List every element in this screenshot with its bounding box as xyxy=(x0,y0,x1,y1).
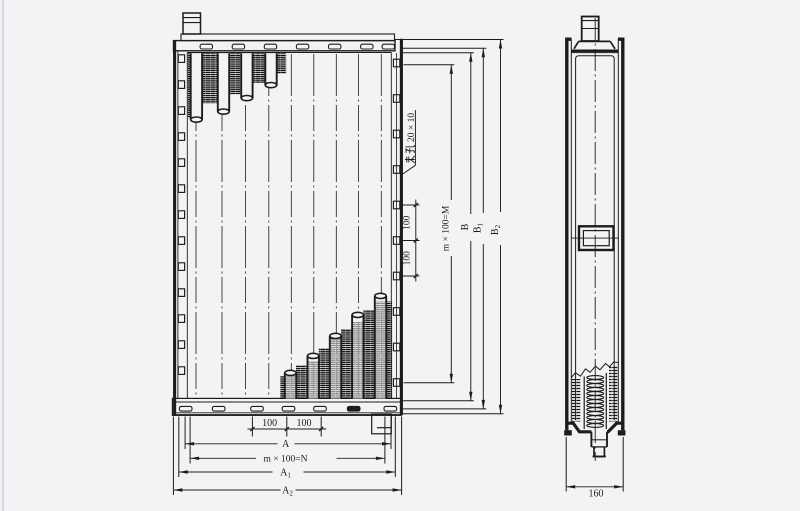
svg-text:100: 100 xyxy=(403,215,413,230)
svg-text:100: 100 xyxy=(262,418,277,429)
svg-text:m × 100=M: m × 100=M xyxy=(442,205,452,251)
svg-text:20 × 10: 20 × 10 xyxy=(407,113,417,142)
svg-text:100: 100 xyxy=(297,418,312,429)
svg-text:m × 100=N: m × 100=N xyxy=(264,455,308,465)
svg-text:B: B xyxy=(460,223,471,230)
svg-text:A: A xyxy=(282,439,290,450)
svg-text:160: 160 xyxy=(589,489,604,500)
svg-text:100: 100 xyxy=(403,251,413,266)
